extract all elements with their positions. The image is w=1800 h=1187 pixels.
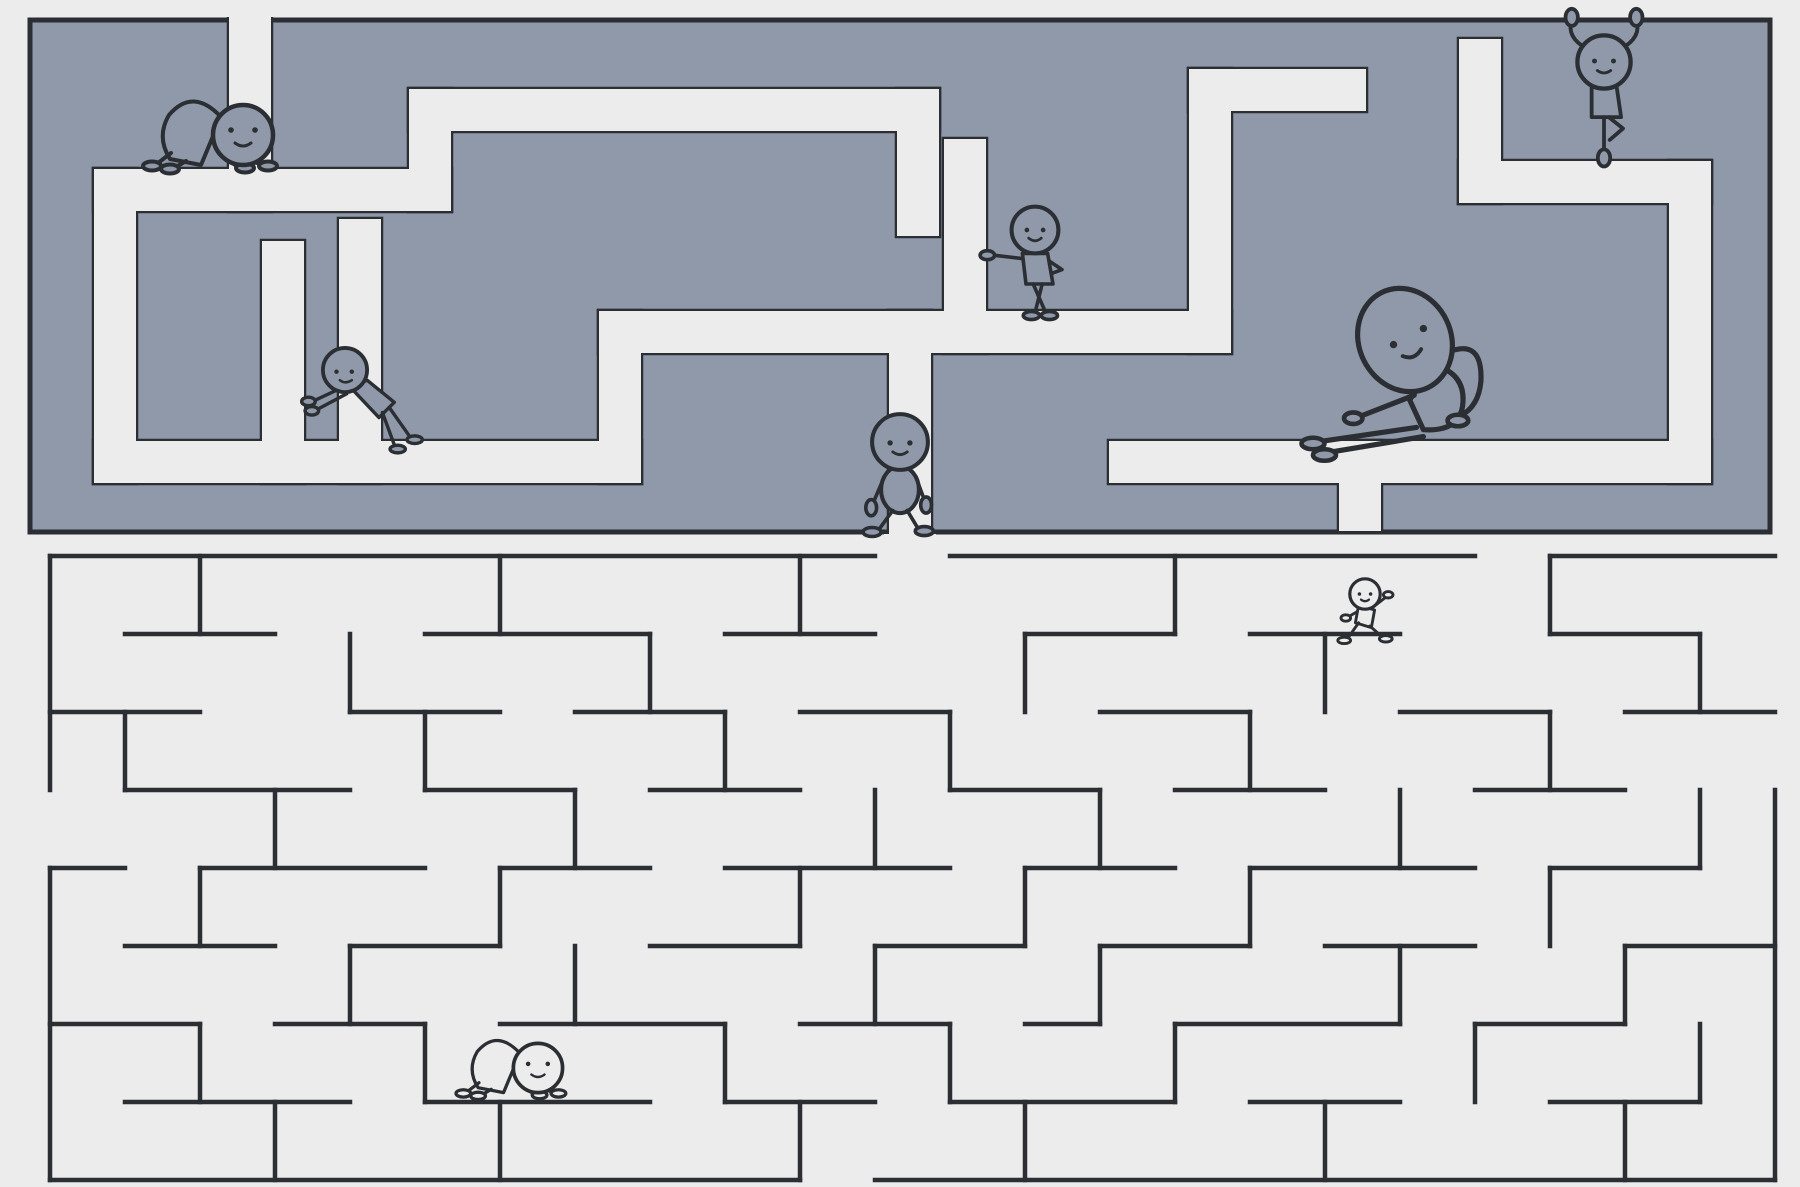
corridor-fill-lean-stub: [944, 139, 986, 353]
corridor-fill-top-snake: [409, 89, 939, 131]
maze-scene: [0, 0, 1800, 1187]
corridor-fill-left-column: [94, 169, 136, 483]
corridor-fill-top-snake: [897, 89, 939, 236]
corridor-fill-cat-ledge: [94, 169, 451, 211]
corridor-fill-tree-ledge: [1669, 161, 1711, 483]
maze-illustration: [0, 0, 1800, 1187]
corridor-fill-bottom-right-run: [1109, 441, 1711, 483]
maze-opening-1: [884, 534, 936, 586]
maze-opening-0: [226, 0, 274, 17]
corridor-fill-border-stub: [1339, 441, 1381, 531]
corridor-fill-right-snake: [1189, 69, 1231, 353]
corridor-fill-push-column: [262, 241, 304, 483]
corridor-fill-mid-riser: [599, 311, 931, 353]
corridor-fill-lean-run: [889, 311, 1231, 353]
corridor-fill-right-snake: [1189, 69, 1366, 111]
